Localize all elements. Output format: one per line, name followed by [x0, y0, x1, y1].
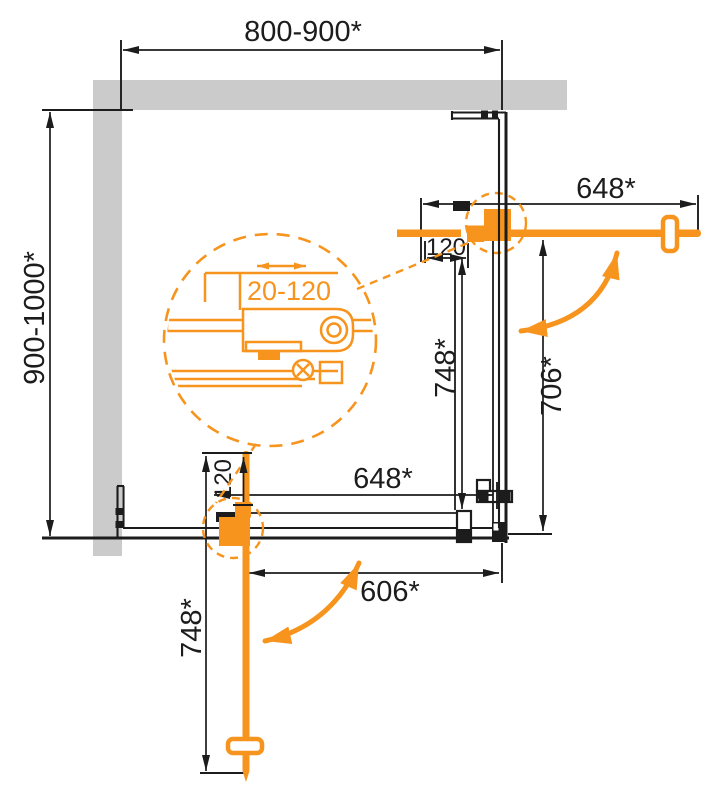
right-fixed-panel	[493, 112, 506, 543]
dim-bottom-panel-label: 648*	[353, 463, 413, 495]
detail-leader-top	[357, 243, 468, 289]
dim-bottom-opening-label: 606*	[360, 576, 420, 608]
dim-right-opening-label: 706*	[536, 356, 568, 416]
dim-top-width-label: 800-900*	[244, 16, 362, 48]
wall-profile-top	[452, 111, 506, 121]
door-bottom-tip	[243, 771, 250, 782]
door-bottom-hinge	[219, 517, 250, 546]
dim-left-depth-label: 900-1000*	[19, 251, 51, 385]
dim-bottom-door-label: 748*	[176, 598, 208, 658]
wall-top	[93, 80, 567, 110]
dim-right-panel: 748*	[430, 259, 462, 509]
dim-bottom-opening: 606*	[249, 543, 502, 608]
adjustment-range-label: 20-120	[247, 276, 331, 306]
enclosure-diagram: 800-900* 900-1000* 648* 120 748*	[0, 0, 721, 800]
door-right-handle[interactable]	[663, 217, 677, 251]
diagram-canvas: 800-900* 900-1000* 648* 120 748*	[0, 0, 721, 800]
door-right-glass-inner	[397, 230, 461, 238]
dim-top-overlap-label: 120	[426, 234, 466, 261]
corner-connector	[457, 480, 512, 542]
dim-top-door-label: 648*	[576, 173, 636, 205]
swing-arrow-right-door	[521, 253, 617, 331]
dim-right-opening: 706*	[508, 240, 568, 534]
dim-right-panel-label: 748*	[430, 338, 462, 398]
pivot-bracket-top	[453, 201, 470, 211]
roller-wheel	[321, 317, 347, 343]
swing-arrow-bottom-door	[265, 563, 359, 641]
door-right-hinge-tab	[467, 226, 484, 243]
door-bottom-handle[interactable]	[228, 739, 262, 753]
